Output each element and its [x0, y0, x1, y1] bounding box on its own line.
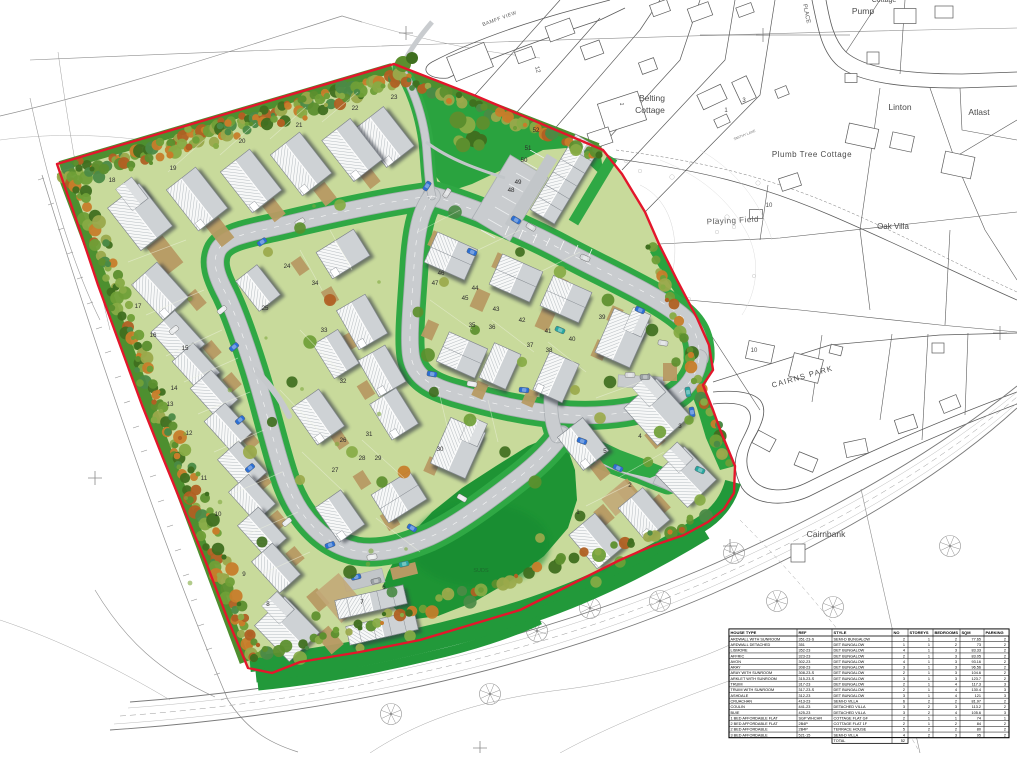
svg-text:2: 2 — [1004, 699, 1006, 703]
svg-text:425-23: 425-23 — [799, 711, 811, 715]
svg-text:4: 4 — [903, 733, 905, 737]
svg-text:1: 1 — [928, 688, 930, 692]
svg-text:6: 6 — [903, 699, 905, 703]
svg-text:96.56: 96.56 — [971, 666, 981, 670]
svg-text:48: 48 — [508, 187, 515, 194]
svg-text:3: 3 — [1004, 711, 1006, 715]
svg-text:50: 50 — [521, 157, 528, 164]
svg-text:ARAY WITH SUNROOM: ARAY WITH SUNROOM — [731, 671, 773, 675]
svg-text:5: 5 — [903, 728, 905, 732]
svg-text:31: 31 — [366, 431, 373, 438]
svg-text:2: 2 — [928, 699, 930, 703]
svg-text:Cairnbank: Cairnbank — [807, 529, 846, 539]
svg-text:23: 23 — [391, 94, 398, 101]
svg-text:43: 43 — [493, 306, 500, 313]
svg-text:42: 42 — [519, 317, 526, 324]
svg-text:LISMORE: LISMORE — [731, 649, 749, 653]
svg-text:312-23: 312-23 — [799, 694, 811, 698]
svg-text:3: 3 — [903, 705, 905, 709]
svg-text:Oak Villa: Oak Villa — [877, 222, 909, 231]
svg-text:315-23-S: 315-23-S — [799, 677, 815, 681]
svg-text:24: 24 — [284, 263, 291, 270]
svg-text:45: 45 — [462, 295, 469, 302]
svg-text:1: 1 — [928, 677, 930, 681]
svg-text:351: 351 — [799, 643, 805, 647]
svg-text:29: 29 — [375, 455, 382, 462]
svg-text:80: 80 — [977, 728, 981, 732]
svg-text:49: 49 — [515, 179, 522, 186]
svg-text:DET BUNGALOW: DET BUNGALOW — [834, 666, 865, 670]
svg-text:1: 1 — [1004, 716, 1006, 720]
svg-text:123.7: 123.7 — [971, 677, 981, 681]
svg-text:3: 3 — [1004, 694, 1006, 698]
svg-text:9: 9 — [242, 571, 246, 578]
svg-text:2: 2 — [903, 722, 905, 726]
svg-text:46: 46 — [438, 270, 445, 277]
svg-text:52: 52 — [901, 739, 905, 743]
svg-text:18: 18 — [109, 177, 116, 184]
svg-text:1: 1 — [955, 716, 957, 720]
svg-text:308-23: 308-23 — [799, 666, 811, 670]
svg-text:2: 2 — [903, 688, 905, 692]
svg-text:2: 2 — [955, 643, 957, 647]
svg-text:1: 1 — [928, 654, 930, 658]
svg-text:DET BUNGALOW: DET BUNGALOW — [834, 683, 865, 687]
svg-text:413-23: 413-23 — [799, 699, 811, 703]
svg-text:44: 44 — [472, 285, 479, 292]
svg-text:7: 7 — [360, 599, 364, 606]
svg-text:2: 2 — [955, 728, 957, 732]
svg-text:2B4P: 2B4P — [799, 722, 809, 726]
svg-text:STYLE: STYLE — [834, 630, 847, 635]
svg-text:Linton: Linton — [888, 102, 911, 112]
svg-text:2: 2 — [1004, 705, 1006, 709]
svg-text:28: 28 — [359, 455, 366, 462]
svg-text:20: 20 — [239, 138, 246, 145]
svg-text:REF: REF — [799, 630, 808, 635]
svg-text:3: 3 — [955, 649, 957, 653]
svg-text:1: 1 — [903, 643, 905, 647]
svg-text:DETACHED VILLA: DETACHED VILLA — [834, 705, 866, 709]
svg-text:Plumb Tree Cottage: Plumb Tree Cottage — [772, 150, 852, 159]
svg-text:3: 3 — [903, 694, 905, 698]
svg-text:40: 40 — [569, 336, 576, 343]
svg-text:14: 14 — [171, 385, 178, 392]
svg-text:3: 3 — [903, 677, 905, 681]
svg-text:SGP WHCHR: SGP WHCHR — [799, 716, 823, 720]
svg-text:BUIE: BUIE — [731, 711, 740, 715]
svg-text:113.2: 113.2 — [972, 705, 981, 709]
svg-text:DET BUNGALOW: DET BUNGALOW — [834, 660, 865, 664]
svg-text:STOREYS: STOREYS — [910, 630, 929, 635]
svg-text:323-23: 323-23 — [799, 654, 811, 658]
svg-text:2: 2 — [955, 699, 957, 703]
svg-text:521-15: 521-15 — [799, 733, 811, 737]
svg-text:10: 10 — [751, 348, 758, 354]
svg-text:2: 2 — [955, 637, 957, 641]
svg-text:352-23: 352-23 — [799, 649, 811, 653]
svg-text:1: 1 — [928, 666, 930, 670]
svg-text:15: 15 — [182, 345, 189, 352]
svg-text:2: 2 — [1004, 654, 1006, 658]
svg-text:22: 22 — [352, 105, 359, 112]
svg-text:26: 26 — [340, 437, 347, 444]
svg-text:DET BUNGALOW: DET BUNGALOW — [834, 688, 865, 692]
svg-text:83.05: 83.05 — [971, 654, 981, 658]
svg-text:6: 6 — [382, 584, 386, 591]
svg-text:2: 2 — [1004, 660, 1006, 664]
svg-text:2: 2 — [955, 722, 957, 726]
svg-text:2: 2 — [903, 637, 905, 641]
svg-text:5: 5 — [603, 448, 607, 455]
svg-text:11: 11 — [201, 475, 208, 482]
svg-text:3: 3 — [678, 423, 682, 430]
svg-text:41: 41 — [545, 328, 552, 335]
svg-text:16: 16 — [150, 332, 157, 339]
svg-text:2: 2 — [1004, 677, 1006, 681]
svg-text:1: 1 — [928, 637, 930, 641]
svg-text:2: 2 — [903, 716, 905, 720]
svg-text:COULIN: COULIN — [731, 705, 746, 709]
svg-text:1 BED AFFORDABLE FLAT: 1 BED AFFORDABLE FLAT — [731, 716, 779, 720]
svg-text:COTTAGE FLAT GF: COTTAGE FLAT GF — [834, 716, 869, 720]
svg-text:441-23: 441-23 — [799, 705, 811, 709]
svg-text:2: 2 — [1004, 649, 1006, 653]
svg-text:34: 34 — [312, 280, 319, 287]
svg-text:DETACHED VILLA: DETACHED VILLA — [834, 711, 866, 715]
svg-text:DET BUNGALOW: DET BUNGALOW — [834, 694, 865, 698]
svg-text:30: 30 — [437, 446, 444, 453]
svg-text:1: 1 — [928, 649, 930, 653]
svg-text:317-23: 317-23 — [799, 683, 811, 687]
svg-text:4: 4 — [955, 711, 957, 715]
svg-text:2 BED AFFORDABLE FLAT: 2 BED AFFORDABLE FLAT — [731, 722, 779, 726]
svg-text:317-23-S: 317-23-S — [799, 688, 815, 692]
svg-text:4: 4 — [955, 694, 957, 698]
svg-text:32: 32 — [340, 378, 347, 385]
svg-text:DET BUNGALOW: DET BUNGALOW — [834, 643, 865, 647]
svg-text:HOUSE TYPE: HOUSE TYPE — [731, 630, 757, 635]
svg-text:3 BED AFFORDABLE: 3 BED AFFORDABLE — [731, 733, 769, 737]
svg-text:Belting: Belting — [639, 93, 665, 103]
svg-text:3: 3 — [955, 677, 957, 681]
svg-text:1: 1 — [618, 103, 624, 106]
svg-text:2B4P: 2B4P — [799, 728, 809, 732]
svg-text:3: 3 — [1004, 683, 1006, 687]
svg-text:DET BUNGALOW: DET BUNGALOW — [834, 677, 865, 681]
svg-text:2: 2 — [928, 728, 930, 732]
svg-text:74: 74 — [977, 716, 981, 720]
svg-text:SUDS: SUDS — [473, 568, 489, 574]
svg-text:PARKING: PARKING — [986, 630, 1004, 635]
svg-text:2: 2 — [928, 705, 930, 709]
svg-text:TRUIM: TRUIM — [731, 683, 743, 687]
svg-text:2 BED AFFORDABLE: 2 BED AFFORDABLE — [731, 728, 769, 732]
svg-text:2: 2 — [1004, 722, 1006, 726]
svg-text:SQM: SQM — [962, 630, 972, 635]
svg-text:3: 3 — [955, 733, 957, 737]
svg-text:84: 84 — [977, 722, 981, 726]
svg-text:CRUACHAN: CRUACHAN — [731, 699, 753, 703]
svg-text:308-23-S: 308-23-S — [799, 671, 815, 675]
svg-text:TRUIM WITH SUNROOM: TRUIM WITH SUNROOM — [731, 688, 775, 692]
svg-text:3: 3 — [955, 705, 957, 709]
svg-text:2: 2 — [1004, 637, 1006, 641]
svg-text:Atlast: Atlast — [968, 107, 990, 117]
svg-text:33: 33 — [321, 327, 328, 334]
svg-text:10: 10 — [766, 203, 773, 209]
svg-text:93.16: 93.16 — [971, 660, 981, 664]
svg-text:27: 27 — [332, 467, 339, 474]
svg-text:4: 4 — [955, 688, 957, 692]
svg-text:ASHDALE: ASHDALE — [731, 694, 749, 698]
svg-text:BEDROOMS: BEDROOMS — [935, 630, 959, 635]
svg-text:ARDWALL DETACHED: ARDWALL DETACHED — [731, 643, 771, 647]
svg-text:2: 2 — [903, 654, 905, 658]
svg-text:36: 36 — [489, 324, 496, 331]
svg-text:38: 38 — [546, 347, 553, 354]
svg-text:TOTAL: TOTAL — [834, 739, 846, 743]
svg-text:1: 1 — [928, 671, 930, 675]
svg-text:DET BUNGALOW: DET BUNGALOW — [834, 671, 865, 675]
svg-text:DET BUNGALOW: DET BUNGALOW — [834, 649, 865, 653]
svg-text:95: 95 — [977, 733, 981, 737]
svg-text:351-23-S: 351-23-S — [799, 637, 815, 641]
svg-text:17: 17 — [135, 303, 142, 310]
svg-text:4: 4 — [955, 683, 957, 687]
svg-text:51: 51 — [525, 145, 532, 152]
svg-text:3: 3 — [903, 666, 905, 670]
svg-text:NO: NO — [894, 630, 900, 635]
svg-text:1: 1 — [928, 716, 930, 720]
svg-text:117.3: 117.3 — [972, 683, 981, 687]
svg-text:1: 1 — [928, 660, 930, 664]
svg-text:COTTAGE FLAT 1F: COTTAGE FLAT 1F — [834, 722, 868, 726]
svg-text:4: 4 — [638, 433, 642, 440]
svg-text:21: 21 — [296, 122, 303, 129]
svg-text:AFFRIC: AFFRIC — [731, 654, 745, 658]
svg-text:105.6: 105.6 — [971, 711, 981, 715]
svg-text:2: 2 — [903, 671, 905, 675]
svg-text:4: 4 — [903, 660, 905, 664]
svg-text:47: 47 — [432, 280, 439, 287]
svg-text:12: 12 — [186, 430, 193, 437]
svg-text:121: 121 — [975, 694, 981, 698]
svg-text:3: 3 — [955, 666, 957, 670]
svg-text:25: 25 — [262, 305, 269, 312]
svg-text:2: 2 — [628, 482, 632, 489]
svg-text:2: 2 — [903, 683, 905, 687]
svg-text:39: 39 — [599, 314, 606, 321]
svg-text:73: 73 — [977, 643, 981, 647]
svg-text:1: 1 — [928, 722, 930, 726]
svg-text:SEMI-D BUNGALOW: SEMI-D BUNGALOW — [834, 637, 871, 641]
svg-text:81.97: 81.97 — [971, 699, 981, 703]
svg-text:2: 2 — [1004, 733, 1006, 737]
svg-text:Cottage: Cottage — [872, 0, 897, 4]
svg-text:8: 8 — [266, 601, 270, 608]
svg-text:SEMI-D VILLA: SEMI-D VILLA — [834, 699, 859, 703]
svg-text:3: 3 — [955, 660, 957, 664]
svg-text:1: 1 — [576, 509, 580, 516]
svg-text:4: 4 — [903, 649, 905, 653]
svg-text:TERRACE HOUSE: TERRACE HOUSE — [834, 728, 867, 732]
svg-text:3: 3 — [903, 711, 905, 715]
svg-text:2: 2 — [928, 733, 930, 737]
svg-text:3: 3 — [1004, 688, 1006, 692]
svg-text:ARKLET WITH SUNROOM: ARKLET WITH SUNROOM — [731, 677, 777, 681]
svg-text:35: 35 — [469, 322, 476, 329]
svg-text:2: 2 — [1004, 643, 1006, 647]
svg-text:2: 2 — [928, 711, 930, 715]
svg-text:19: 19 — [170, 165, 177, 172]
svg-text:104.6: 104.6 — [971, 671, 981, 675]
svg-text:Cottage: Cottage — [635, 105, 665, 115]
svg-text:13: 13 — [167, 401, 174, 408]
svg-text:2: 2 — [1004, 666, 1006, 670]
svg-text:1: 1 — [928, 643, 930, 647]
svg-text:ARAY: ARAY — [731, 666, 742, 670]
svg-text:2: 2 — [1004, 671, 1006, 675]
svg-text:1: 1 — [928, 683, 930, 687]
svg-text:83.33: 83.33 — [971, 649, 981, 653]
svg-text:10: 10 — [215, 511, 222, 518]
svg-text:Pump: Pump — [852, 6, 874, 16]
svg-text:77.65: 77.65 — [971, 637, 981, 641]
svg-text:3: 3 — [955, 671, 957, 675]
svg-text:2: 2 — [1004, 728, 1006, 732]
svg-text:302-23: 302-23 — [799, 660, 811, 664]
svg-text:SEMI-D VILLA: SEMI-D VILLA — [834, 733, 859, 737]
svg-text:130.4: 130.4 — [971, 688, 981, 692]
svg-text:ARDWALL WITH SUNROOM: ARDWALL WITH SUNROOM — [731, 637, 781, 641]
svg-text:37: 37 — [527, 342, 534, 349]
svg-text:52: 52 — [533, 127, 540, 134]
svg-text:DET BUNGALOW: DET BUNGALOW — [834, 654, 865, 658]
svg-text:3: 3 — [955, 654, 957, 658]
svg-text:1: 1 — [928, 694, 930, 698]
svg-text:AVON: AVON — [731, 660, 742, 664]
